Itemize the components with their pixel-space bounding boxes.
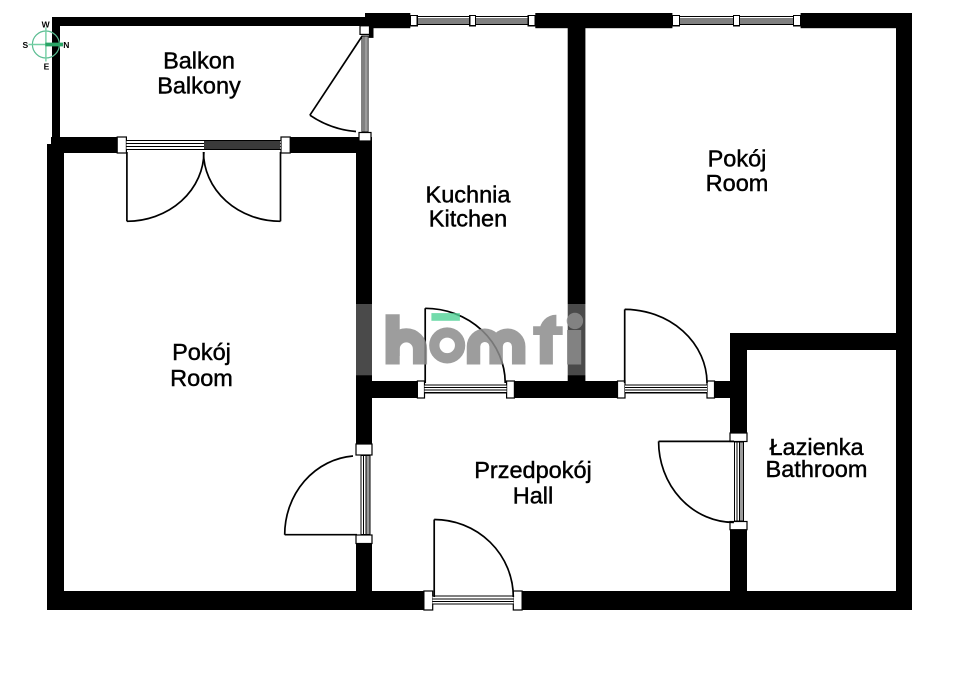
svg-text:Room: Room xyxy=(706,170,769,196)
svg-text:Hall: Hall xyxy=(513,483,553,509)
svg-text:Pokój: Pokój xyxy=(708,146,767,172)
svg-text:Room: Room xyxy=(170,365,233,391)
svg-text:Przedpokój: Przedpokój xyxy=(474,457,592,483)
svg-text:Balkony: Balkony xyxy=(157,73,241,99)
svg-text:E: E xyxy=(44,62,50,72)
svg-text:S: S xyxy=(22,40,28,50)
svg-text:N: N xyxy=(63,40,69,50)
svg-text:Pokój: Pokój xyxy=(172,339,231,365)
svg-text:Bathroom: Bathroom xyxy=(766,456,868,482)
svg-text:Kuchnia: Kuchnia xyxy=(426,181,512,207)
svg-text:Kitchen: Kitchen xyxy=(429,206,507,232)
svg-text:W: W xyxy=(42,19,51,29)
svg-text:Balkon: Balkon xyxy=(163,47,235,73)
